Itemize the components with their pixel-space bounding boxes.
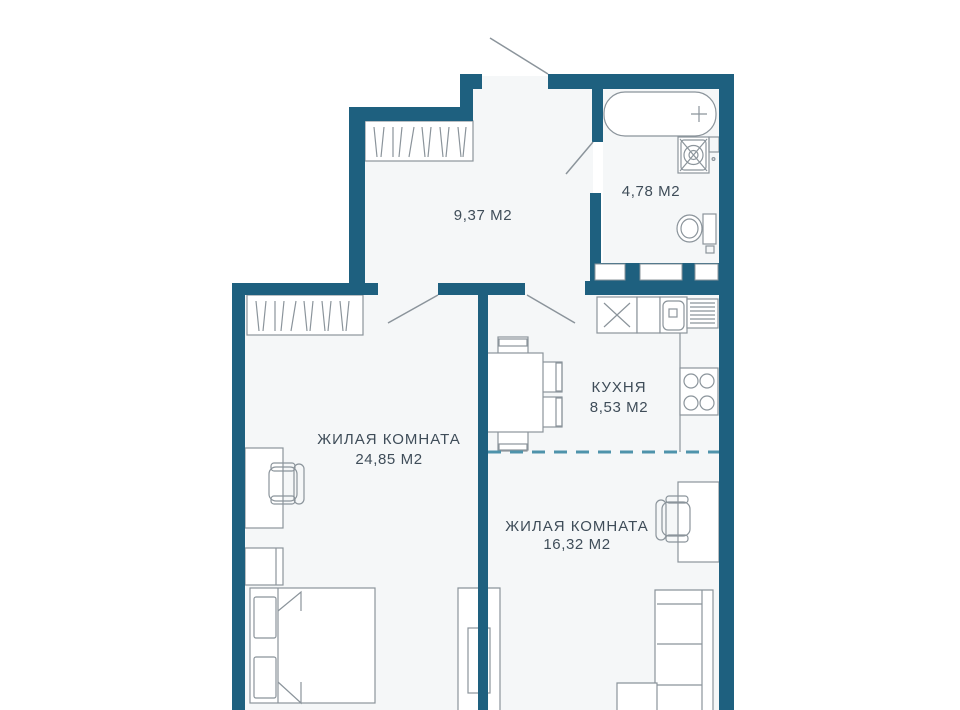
entry-door-swing bbox=[490, 38, 548, 74]
side-table-icon bbox=[617, 683, 657, 710]
bedroom-wardrobe-icon bbox=[247, 295, 363, 335]
wall-top bbox=[548, 74, 734, 89]
living-room-2-name-label: ЖИЛАЯ КОМНАТА bbox=[505, 518, 649, 535]
vent-shaft-icon bbox=[640, 264, 682, 280]
living-room-2-area-label: 16,32 М2 bbox=[543, 536, 610, 553]
stove-burners-icon bbox=[680, 368, 718, 415]
wall-kitchen-top bbox=[585, 281, 719, 295]
bathtub-icon bbox=[604, 92, 716, 136]
living-room-1-area-label: 24,85 М2 bbox=[355, 451, 422, 468]
vent-shaft-icon bbox=[695, 264, 718, 280]
living-room-1-name-label: ЖИЛАЯ КОМНАТА bbox=[317, 431, 461, 448]
wall-entry-stub-upper bbox=[460, 74, 482, 89]
wall-left-exterior bbox=[232, 283, 245, 710]
kitchen-sink-icon bbox=[660, 297, 687, 333]
sofa-icon bbox=[655, 590, 713, 710]
dresser-icon bbox=[245, 548, 283, 585]
wall-room1-top-b bbox=[438, 283, 525, 295]
wall-entry-stub-lower bbox=[460, 89, 473, 107]
vent-shafts bbox=[595, 264, 718, 280]
hall-wardrobe-icon bbox=[365, 121, 473, 161]
vent-shaft-icon bbox=[595, 264, 625, 280]
wall-room1-top-a bbox=[245, 283, 378, 295]
wall-room-divider bbox=[478, 295, 488, 710]
hallway-area-label: 9,37 М2 bbox=[454, 207, 512, 224]
wall-hall-top bbox=[349, 107, 473, 121]
floor-entry-threshold bbox=[482, 76, 548, 89]
bathroom-area-label: 4,78 М2 bbox=[622, 183, 680, 200]
wall-bath-left-upper bbox=[592, 89, 603, 142]
wall-bath-left-lower bbox=[590, 193, 601, 263]
wall-right bbox=[719, 74, 734, 710]
dish-rack-icon bbox=[687, 299, 718, 328]
kitchen-name-label: КУХНЯ bbox=[591, 379, 646, 396]
kitchen-area-label: 8,53 М2 bbox=[590, 399, 648, 416]
floor-entry-zone bbox=[473, 89, 593, 121]
floorplan-canvas: 9,37 М2 4,78 М2 КУХНЯ 8,53 М2 ЖИЛАЯ КОМН… bbox=[0, 0, 960, 710]
apartment-floorplan: 9,37 М2 4,78 М2 КУХНЯ 8,53 М2 ЖИЛАЯ КОМН… bbox=[0, 0, 960, 710]
dining-table bbox=[487, 353, 543, 432]
wall-hall-left bbox=[349, 121, 365, 283]
double-bed-icon bbox=[250, 588, 375, 703]
